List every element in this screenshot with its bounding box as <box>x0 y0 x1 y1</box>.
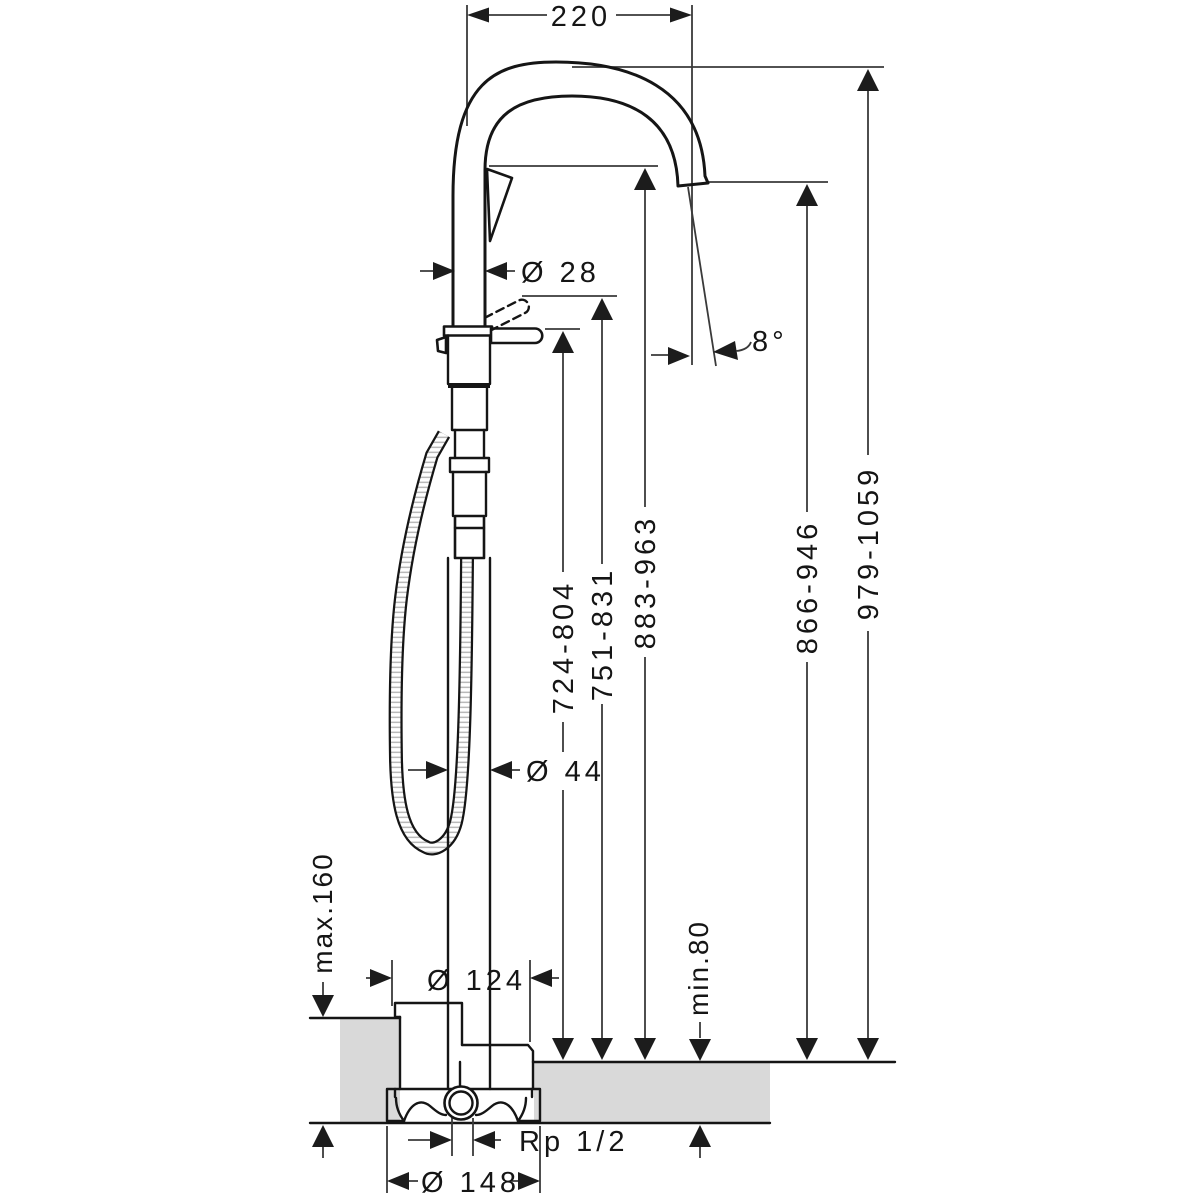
technical-drawing-page: 220 Ø 28 8° 724-804 <box>0 0 1200 1200</box>
dim-floor-buildup-max: max.160 <box>307 852 338 1158</box>
dim-floor-buildup-min-label: min.80 <box>683 920 714 1016</box>
shower-holder <box>453 472 486 516</box>
dim-spout-reach-label: 220 <box>551 1 611 33</box>
dim-height-overall-label: 979-1059 <box>853 466 885 621</box>
spout-inner-wedge <box>487 169 512 241</box>
arrow-right-icon <box>430 1131 452 1149</box>
arrow-down-icon <box>312 995 334 1017</box>
arrow-right-icon <box>426 761 448 779</box>
basic-set-flange <box>387 1087 540 1122</box>
escutcheon-step <box>462 1045 533 1062</box>
body-upper-section <box>448 336 490 385</box>
arrow-down-icon <box>552 1038 574 1060</box>
leader-line <box>736 342 751 351</box>
dim-spray-angle: 8° <box>651 187 788 366</box>
dim-spout-pipe-diameter: Ø 28 <box>420 257 600 289</box>
escutcheon <box>395 1003 533 1089</box>
dimension-drawing-canvas: 220 Ø 28 8° 724-804 <box>0 0 1200 1200</box>
holder-ring <box>450 458 489 472</box>
finished-floor-fill <box>340 1019 400 1122</box>
body-lower-section <box>455 430 484 458</box>
arrow-up-icon <box>634 168 656 190</box>
escutcheon-cap <box>395 1003 462 1045</box>
arrow-right-icon <box>670 8 692 23</box>
dim-height-outlet: 866-946 <box>708 182 828 1060</box>
dim-floor-buildup-max-label: max.160 <box>307 852 338 973</box>
arrow-left-icon <box>473 1131 495 1149</box>
dim-escutcheon-diameter-label: Ø 124 <box>427 965 526 997</box>
dim-basic-set-diameter: Ø 148 <box>387 1126 540 1199</box>
dim-basic-set-diameter-label: Ø 148 <box>421 1167 520 1199</box>
arrow-up-icon <box>857 69 879 91</box>
arrow-left-icon <box>713 341 738 360</box>
lever-handle-lowered <box>491 329 542 344</box>
arrow-left-icon <box>490 761 512 779</box>
body-mid-section <box>452 388 487 430</box>
arrow-left-icon <box>485 262 507 280</box>
body-collar <box>444 327 492 336</box>
arrow-up-icon <box>796 184 818 206</box>
subfloor-fill <box>534 1063 770 1122</box>
check-knob <box>437 337 446 353</box>
arrow-right-icon <box>518 1172 540 1190</box>
dim-riser-diameter-label: Ø 44 <box>526 756 605 788</box>
hose-texture <box>396 434 467 849</box>
dim-height-overall: 979-1059 <box>572 67 885 1060</box>
dim-connection-thread-label: Rp 1/2 <box>519 1126 628 1158</box>
dim-height-handle-lowered: 724-804 <box>545 329 580 1060</box>
dim-spray-angle-label: 8° <box>752 326 788 358</box>
hand-shower-handle <box>455 516 484 558</box>
arrow-left-icon <box>467 8 489 23</box>
dim-riser-diameter: Ø 44 <box>408 756 605 788</box>
arrow-right-icon <box>370 969 392 987</box>
arrow-right-icon <box>668 347 690 365</box>
arrow-down-icon <box>857 1038 879 1060</box>
arrow-down-icon <box>689 1039 711 1061</box>
arrow-down-icon <box>591 1038 613 1060</box>
arrow-up-icon <box>591 298 613 320</box>
arrow-up-icon <box>312 1125 334 1147</box>
arrow-left-icon <box>530 969 552 987</box>
dim-spout-pipe-diameter-label: Ø 28 <box>521 257 600 289</box>
arrow-left-icon <box>387 1172 409 1190</box>
dim-height-outlet-label: 866-946 <box>792 520 824 654</box>
escutcheon-lower-sides <box>460 1062 533 1089</box>
arrow-down-icon <box>634 1038 656 1060</box>
arrow-up-icon <box>689 1125 711 1147</box>
arrow-down-icon <box>796 1038 818 1060</box>
dim-height-spout-underside-label: 883-963 <box>630 515 662 649</box>
dim-height-handle-lowered-label: 724-804 <box>548 580 580 714</box>
arrow-up-icon <box>552 331 574 353</box>
hand-shower-hose <box>396 434 467 849</box>
dim-height-handle-raised-label: 751-831 <box>587 567 619 701</box>
